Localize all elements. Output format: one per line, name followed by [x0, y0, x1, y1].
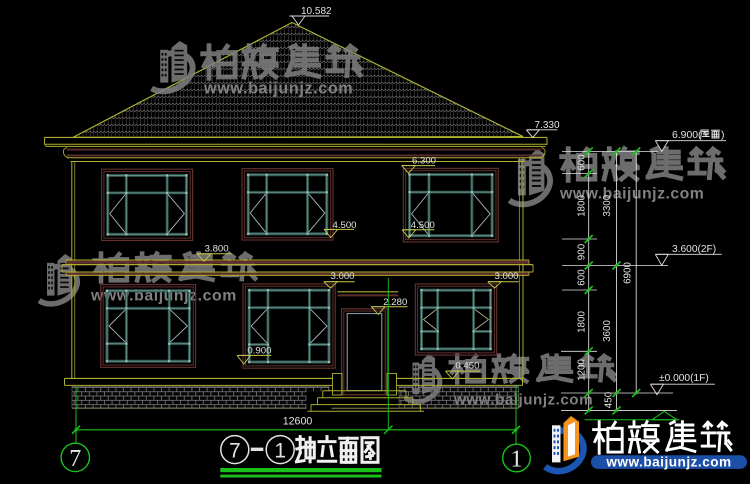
svg-text:600: 600 [577, 269, 588, 286]
svg-text:2.280: 2.280 [383, 297, 407, 308]
svg-text:4.500: 4.500 [333, 220, 357, 231]
svg-text:www.baijunjz.com: www.baijunjz.com [605, 454, 731, 469]
svg-text:6900: 6900 [623, 262, 634, 284]
svg-text:7: 7 [229, 439, 241, 462]
svg-text:±0.000(1F): ±0.000(1F) [659, 373, 709, 384]
svg-text:1200: 1200 [577, 359, 588, 381]
svg-text:900: 900 [577, 243, 588, 260]
svg-text:3.600(2F): 3.600(2F) [672, 244, 716, 255]
svg-text:7: 7 [69, 446, 81, 472]
svg-text:www.baijunjz.com: www.baijunjz.com [453, 392, 593, 409]
svg-text:10.582: 10.582 [301, 6, 332, 17]
svg-text:3600: 3600 [602, 320, 613, 342]
svg-text:6.300: 6.300 [412, 156, 436, 167]
svg-text:600: 600 [577, 154, 588, 171]
svg-text:12600: 12600 [283, 415, 313, 427]
svg-text:6.900(: 6.900( [672, 130, 702, 141]
svg-text:1: 1 [511, 447, 523, 473]
svg-text:3.000: 3.000 [495, 271, 519, 282]
svg-text:1800: 1800 [577, 311, 588, 333]
svg-text:): ) [721, 130, 724, 141]
svg-text:3.800: 3.800 [205, 244, 229, 255]
svg-text:1800: 1800 [577, 195, 588, 217]
svg-text:0.450: 0.450 [455, 360, 479, 371]
svg-text:www.baijunjz.com: www.baijunjz.com [203, 80, 353, 98]
svg-text:3.000: 3.000 [331, 271, 355, 282]
svg-text:3300: 3300 [602, 194, 613, 216]
svg-text:1: 1 [274, 439, 286, 462]
svg-text:0.900: 0.900 [247, 346, 271, 357]
svg-text:7.330: 7.330 [535, 120, 560, 131]
svg-text:4.500: 4.500 [411, 220, 435, 231]
svg-text:450: 450 [604, 391, 615, 408]
